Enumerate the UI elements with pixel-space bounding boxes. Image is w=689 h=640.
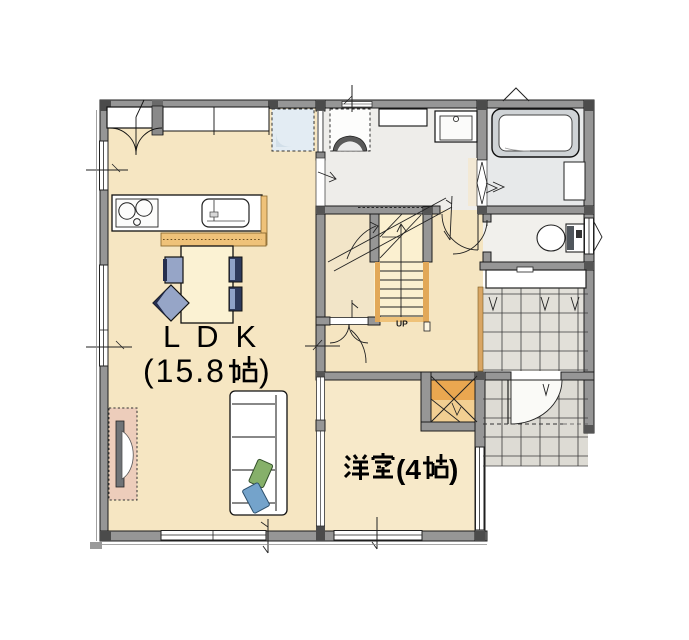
svg-text:(4: (4 <box>396 454 421 485</box>
svg-text:): ) <box>449 454 458 485</box>
svg-text:(15.8: (15.8 <box>143 353 226 389</box>
svg-text:): ) <box>259 353 270 389</box>
svg-text:UP: UP <box>396 319 408 329</box>
svg-text:L D K: L D K <box>163 319 260 354</box>
